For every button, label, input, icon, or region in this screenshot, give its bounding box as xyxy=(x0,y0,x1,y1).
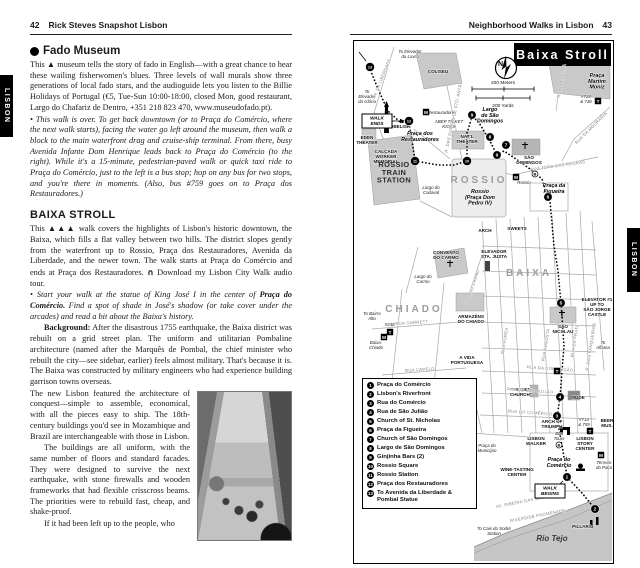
map-scale: 200 Meters 200 Yards xyxy=(472,80,534,109)
legend-label: To Avenida da Liberdade & Pombal Statue xyxy=(377,490,473,503)
legend-number-badge: 5 xyxy=(367,418,374,425)
route-stop-number: 3 xyxy=(556,414,559,420)
map-label: Largo doCadaval xyxy=(422,185,440,195)
map-label: Praça doMunicípio xyxy=(478,443,497,453)
map-label: SÃODOMINGOS xyxy=(516,154,542,165)
route-stop-number: 6 xyxy=(547,195,550,201)
map-label: Baixa-Chiado xyxy=(369,340,383,350)
page-42-content: 42 Rick Steves Snapshot Lisbon Fado Muse… xyxy=(30,20,292,543)
legend-label: Rua do Comércio xyxy=(377,400,426,407)
fado-museum-heading: Fado Museum xyxy=(30,45,292,57)
map-label: #714& 759 xyxy=(578,417,590,427)
map-legend: 1Praça do Comércio2Lisbon's Riverfront3R… xyxy=(362,378,477,509)
baixa-intro-paragraph: This ▲▲▲ walk covers the highlights of L… xyxy=(30,224,292,289)
legend-item: 5Church of St. Nicholas xyxy=(367,418,473,425)
background-label: Background: xyxy=(44,323,90,332)
legend-number-badge: 8 xyxy=(367,445,374,452)
lisbon-side-tab-left: LISBON xyxy=(0,75,13,137)
legend-number-badge: 10 xyxy=(367,463,374,470)
fado-museum-paragraph: This ▲ museum tells the story of fado in… xyxy=(30,60,292,114)
map-label: MUDE xyxy=(571,395,585,400)
legend-item: 12Praça dos Restauradores xyxy=(367,481,473,488)
fado-walk-note: • This walk is over. To get back downtow… xyxy=(30,115,292,201)
photo-wrap-zone: The new Lisbon featured the architecture… xyxy=(30,389,292,543)
elevador-santa-justa-icon xyxy=(485,261,490,271)
sao-domingos-church-building xyxy=(512,139,540,155)
legend-label: Rossio Square xyxy=(377,463,418,470)
map-label: Rossio xyxy=(517,180,531,185)
map-label: AV. DA LIBERDADE xyxy=(371,58,392,99)
map-label: #24E xyxy=(385,322,395,327)
map-label: BAIXA xyxy=(506,268,552,279)
legend-number-badge: 12 xyxy=(367,481,374,488)
legend-label: Praça do Comércio xyxy=(377,382,431,389)
map-label: CHIADO xyxy=(385,304,442,315)
map-label: Largo doCarmo xyxy=(414,274,432,284)
map-label: RUA AUGUSTA xyxy=(540,328,550,361)
map-label: RUA DO COMÉRCIO xyxy=(508,408,553,416)
legend-label: Lisbon's Riverfront xyxy=(377,391,431,398)
legend-item: 6Praça da Figueira xyxy=(367,427,473,434)
route-stop-number: 2 xyxy=(594,507,597,513)
map-label: ELEVATOR #1UP TOSÃO JORGECASTLE xyxy=(582,297,613,317)
map-label: To BairroAlto xyxy=(363,311,381,321)
book-spread: LISBON 42 Rick Steves Snapshot Lisbon Fa… xyxy=(0,0,640,568)
running-head-right: Neighborhood Walks in Lisbon 43 xyxy=(350,20,612,35)
route-stop-number: 11 xyxy=(413,160,417,164)
page-number-left: 42 xyxy=(30,20,39,30)
route-stop-number: 13 xyxy=(368,66,372,70)
legend-label: Rossio Station xyxy=(377,472,418,479)
map-label: ROSSIOTRAINSTATION xyxy=(377,160,411,185)
map-label: ELEVADORSTA. JUSTA xyxy=(481,249,508,259)
background-body: After the disastrous 1755 earthquake, th… xyxy=(30,323,292,386)
legend-label: Church of St. Nicholas xyxy=(377,418,440,425)
legend-label: Praça da Figueira xyxy=(377,427,426,434)
legend-number-badge: 6 xyxy=(367,427,374,434)
legend-item: 11Rossio Station xyxy=(367,472,473,479)
legend-label: Rua de São Julião xyxy=(377,409,428,416)
symbol-letter: T xyxy=(556,369,559,374)
route-stop-number: 7 xyxy=(505,143,508,149)
legend-item: 3Rua do Comércio xyxy=(367,400,473,407)
map-label: CONVENTODO CARMO xyxy=(433,250,459,260)
map-label: PraçaMartimMoniz xyxy=(588,73,606,91)
fado-museum-title: Fado Museum xyxy=(43,45,120,57)
map-label: SWEETS xyxy=(507,226,526,231)
baixa-stroll-heading: BAIXA STROLL xyxy=(30,209,292,221)
legend-label: Ginjinha Bars (2) xyxy=(377,454,424,461)
route-stop-number: 10 xyxy=(465,160,469,164)
lisbon-side-tab-right: LISBON xyxy=(627,228,640,292)
map-label: #728& 736 xyxy=(580,94,592,104)
route-stop-number: 1 xyxy=(566,475,569,481)
route-stop-number: 8 xyxy=(489,135,492,141)
map-label: BEERMUS. xyxy=(601,418,613,428)
running-title-left: Rick Steves Snapshot Lisbon xyxy=(48,20,167,30)
background-paragraph: Background: After the disastrous 1755 ea… xyxy=(30,323,292,387)
legend-label: Praça dos Restauradores xyxy=(377,481,448,488)
route-stop-number: 4 xyxy=(559,395,562,401)
map-label: LISBONWALKER xyxy=(526,436,547,446)
route-stop-number: 5 xyxy=(560,301,563,307)
baixa-street-photo xyxy=(197,391,292,541)
symbol-letter: M xyxy=(599,453,603,458)
route-stop-number: 9 xyxy=(471,113,474,119)
bus-stop-letter: B xyxy=(534,172,537,177)
legend-label: Church of São Domingos xyxy=(377,436,448,443)
symbol-letter: M xyxy=(382,335,386,340)
sao-nicolau-church-building xyxy=(550,307,576,323)
map-label: RUA DA MOURARIA xyxy=(574,111,608,145)
symbol-letter: T xyxy=(589,429,592,434)
map-label: Praça doComércio xyxy=(547,457,573,469)
map-title: Baixa Stroll xyxy=(516,48,609,62)
map-label: A VIDAPORTUGUESA xyxy=(451,355,484,365)
legend-item: 8Largo de São Domingos xyxy=(367,445,473,452)
legend-number-badge: 11 xyxy=(367,472,374,479)
walk-start-pre: • Start your walk at the statue of King … xyxy=(30,290,259,299)
page-number-right: 43 xyxy=(603,20,612,30)
map-label: Praça dosRestauradores xyxy=(401,131,439,143)
map-label: RUA CAPELO xyxy=(405,366,435,373)
king-jose-statue-icon xyxy=(578,464,583,469)
legend-number-badge: 9 xyxy=(367,454,374,461)
symbol-letter: T xyxy=(389,330,392,335)
compass-rose: N xyxy=(496,56,517,80)
page-43: Neighborhood Walks in Lisbon 43 xyxy=(320,0,640,568)
legend-label: Largo de São Domingos xyxy=(377,445,445,452)
legend-item: 1Praça do Comércio xyxy=(367,382,473,389)
symbol-letter: T xyxy=(597,99,600,104)
map-label: PILLARS xyxy=(572,524,592,529)
running-head-left: 42 Rick Steves Snapshot Lisbon xyxy=(30,20,292,35)
map-label: ARCH xyxy=(478,228,492,233)
route-stop-number: 12 xyxy=(407,120,411,124)
page-42: LISBON 42 Rick Steves Snapshot Lisbon Fa… xyxy=(0,0,320,568)
symbol-letter: M xyxy=(514,175,518,180)
legend-item: 9Ginjinha Bars (2) xyxy=(367,454,473,461)
legend-number-badge: 7 xyxy=(367,436,374,443)
map-label: ARMAZÉNSDO CHIADO xyxy=(458,312,485,324)
legend-item: 2Lisbon's Riverfront xyxy=(367,391,473,398)
bus-stop-letter: B xyxy=(558,443,561,448)
map-label: ROSSIO xyxy=(451,175,508,186)
audio-tour-icon: ∩ xyxy=(147,267,154,277)
symbol-letter: M xyxy=(424,110,428,115)
map-label: RUA ÁUREA xyxy=(500,327,509,354)
legend-item: 13To Avenida da Liberdade & Pombal Statu… xyxy=(367,490,473,503)
map-title-bar: Baixa Stroll xyxy=(514,43,611,66)
walk-start-note: • Start your walk at the statue of King … xyxy=(30,290,292,322)
walk-box-label: WALKENDS xyxy=(370,116,384,126)
legend-item: 10Rossio Square xyxy=(367,463,473,470)
map-label: Largode SãoDomingos xyxy=(477,107,503,125)
legend-number-badge: 13 xyxy=(367,490,374,497)
map-label: ARCH OFTRIUMPH xyxy=(542,419,564,429)
route-stop-number: 9 xyxy=(496,153,499,159)
legend-number-badge: 4 xyxy=(367,409,374,416)
map-label: LISBONSTORYCENTER xyxy=(576,436,596,451)
map-label: Terreirodo Paço xyxy=(596,460,613,470)
baixa-stroll-map: Baixa Stroll N 200 Meters 200 Yards To E… xyxy=(353,40,614,564)
map-stop-marker-icon xyxy=(30,47,39,56)
legend-number-badge: 1 xyxy=(367,382,374,389)
map-label: Rio Tejo xyxy=(536,534,567,543)
map-label: ToAlfama xyxy=(595,340,610,350)
walk-start-post: Find a spot of shade in José's shadow (o… xyxy=(30,301,292,321)
legend-item: 4Rua de São Julião xyxy=(367,409,473,416)
to-liberdade-arrow xyxy=(359,52,366,61)
map-label: RUA DA CONCEIÇÃO xyxy=(527,364,574,372)
compass-north-label: N xyxy=(498,61,503,68)
running-title-right: Neighborhood Walks in Lisbon xyxy=(469,20,594,30)
legend-number-badge: 3 xyxy=(367,400,374,407)
legend-number-badge: 2 xyxy=(367,391,374,398)
map-label: COLISEU xyxy=(428,69,449,74)
legend-item: 7Church of São Domingos xyxy=(367,436,473,443)
scale-meters-label: 200 Meters xyxy=(491,80,516,86)
map-label: WINE-TASTINGCENTER xyxy=(500,467,534,477)
